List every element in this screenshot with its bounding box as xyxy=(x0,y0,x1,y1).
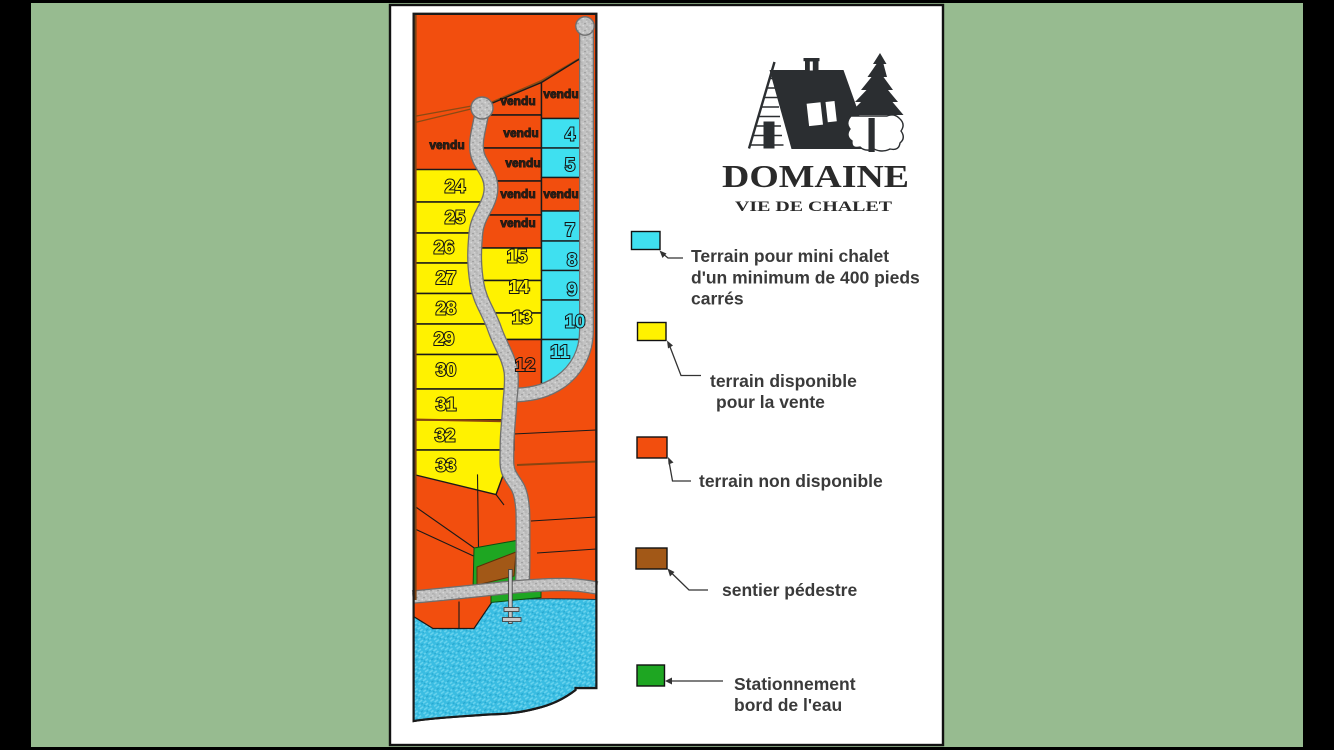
svg-text:15: 15 xyxy=(507,246,528,267)
svg-text:32: 32 xyxy=(435,425,456,446)
svg-text:bord de l'eau: bord de l'eau xyxy=(734,695,842,715)
svg-text:8: 8 xyxy=(567,249,577,270)
svg-text:Terrain pour mini chalet: Terrain pour mini chalet xyxy=(691,246,889,266)
svg-text:26: 26 xyxy=(434,237,455,258)
svg-text:vendu: vendu xyxy=(500,187,535,201)
svg-text:terrain disponible: terrain disponible xyxy=(710,371,857,391)
svg-text:29: 29 xyxy=(434,328,455,349)
svg-text:33: 33 xyxy=(436,455,457,476)
svg-text:10: 10 xyxy=(565,311,586,332)
svg-text:7: 7 xyxy=(565,219,575,240)
svg-text:13: 13 xyxy=(512,307,533,328)
svg-text:24: 24 xyxy=(445,176,466,197)
svg-text:vendu: vendu xyxy=(500,216,535,230)
svg-text:vendu: vendu xyxy=(429,138,464,152)
svg-text:pour la vente: pour la vente xyxy=(716,392,825,412)
svg-text:DOMAINE: DOMAINE xyxy=(722,158,909,194)
svg-text:27: 27 xyxy=(436,267,457,288)
svg-text:31: 31 xyxy=(436,394,457,415)
svg-text:vendu: vendu xyxy=(543,87,578,101)
svg-text:12: 12 xyxy=(515,354,536,375)
svg-text:14: 14 xyxy=(509,276,530,297)
svg-text:carrés: carrés xyxy=(691,289,744,309)
svg-text:4: 4 xyxy=(565,124,576,145)
svg-text:28: 28 xyxy=(436,298,457,319)
svg-text:Stationnement: Stationnement xyxy=(734,674,856,694)
svg-text:VIE DE CHALET: VIE DE CHALET xyxy=(735,199,893,215)
svg-text:vendu: vendu xyxy=(543,187,578,201)
svg-text:vendu: vendu xyxy=(503,126,538,140)
svg-text:9: 9 xyxy=(567,279,577,300)
svg-text:30: 30 xyxy=(436,359,457,380)
svg-text:terrain non disponible: terrain non disponible xyxy=(699,471,883,491)
svg-text:5: 5 xyxy=(565,154,575,175)
svg-text:vendu: vendu xyxy=(500,94,535,108)
svg-text:sentier pédestre: sentier pédestre xyxy=(722,580,857,600)
svg-text:25: 25 xyxy=(445,207,466,228)
svg-text:d'un minimum de 400 pieds: d'un minimum de 400 pieds xyxy=(691,268,920,288)
svg-text:vendu: vendu xyxy=(505,156,540,170)
svg-text:11: 11 xyxy=(550,341,570,362)
